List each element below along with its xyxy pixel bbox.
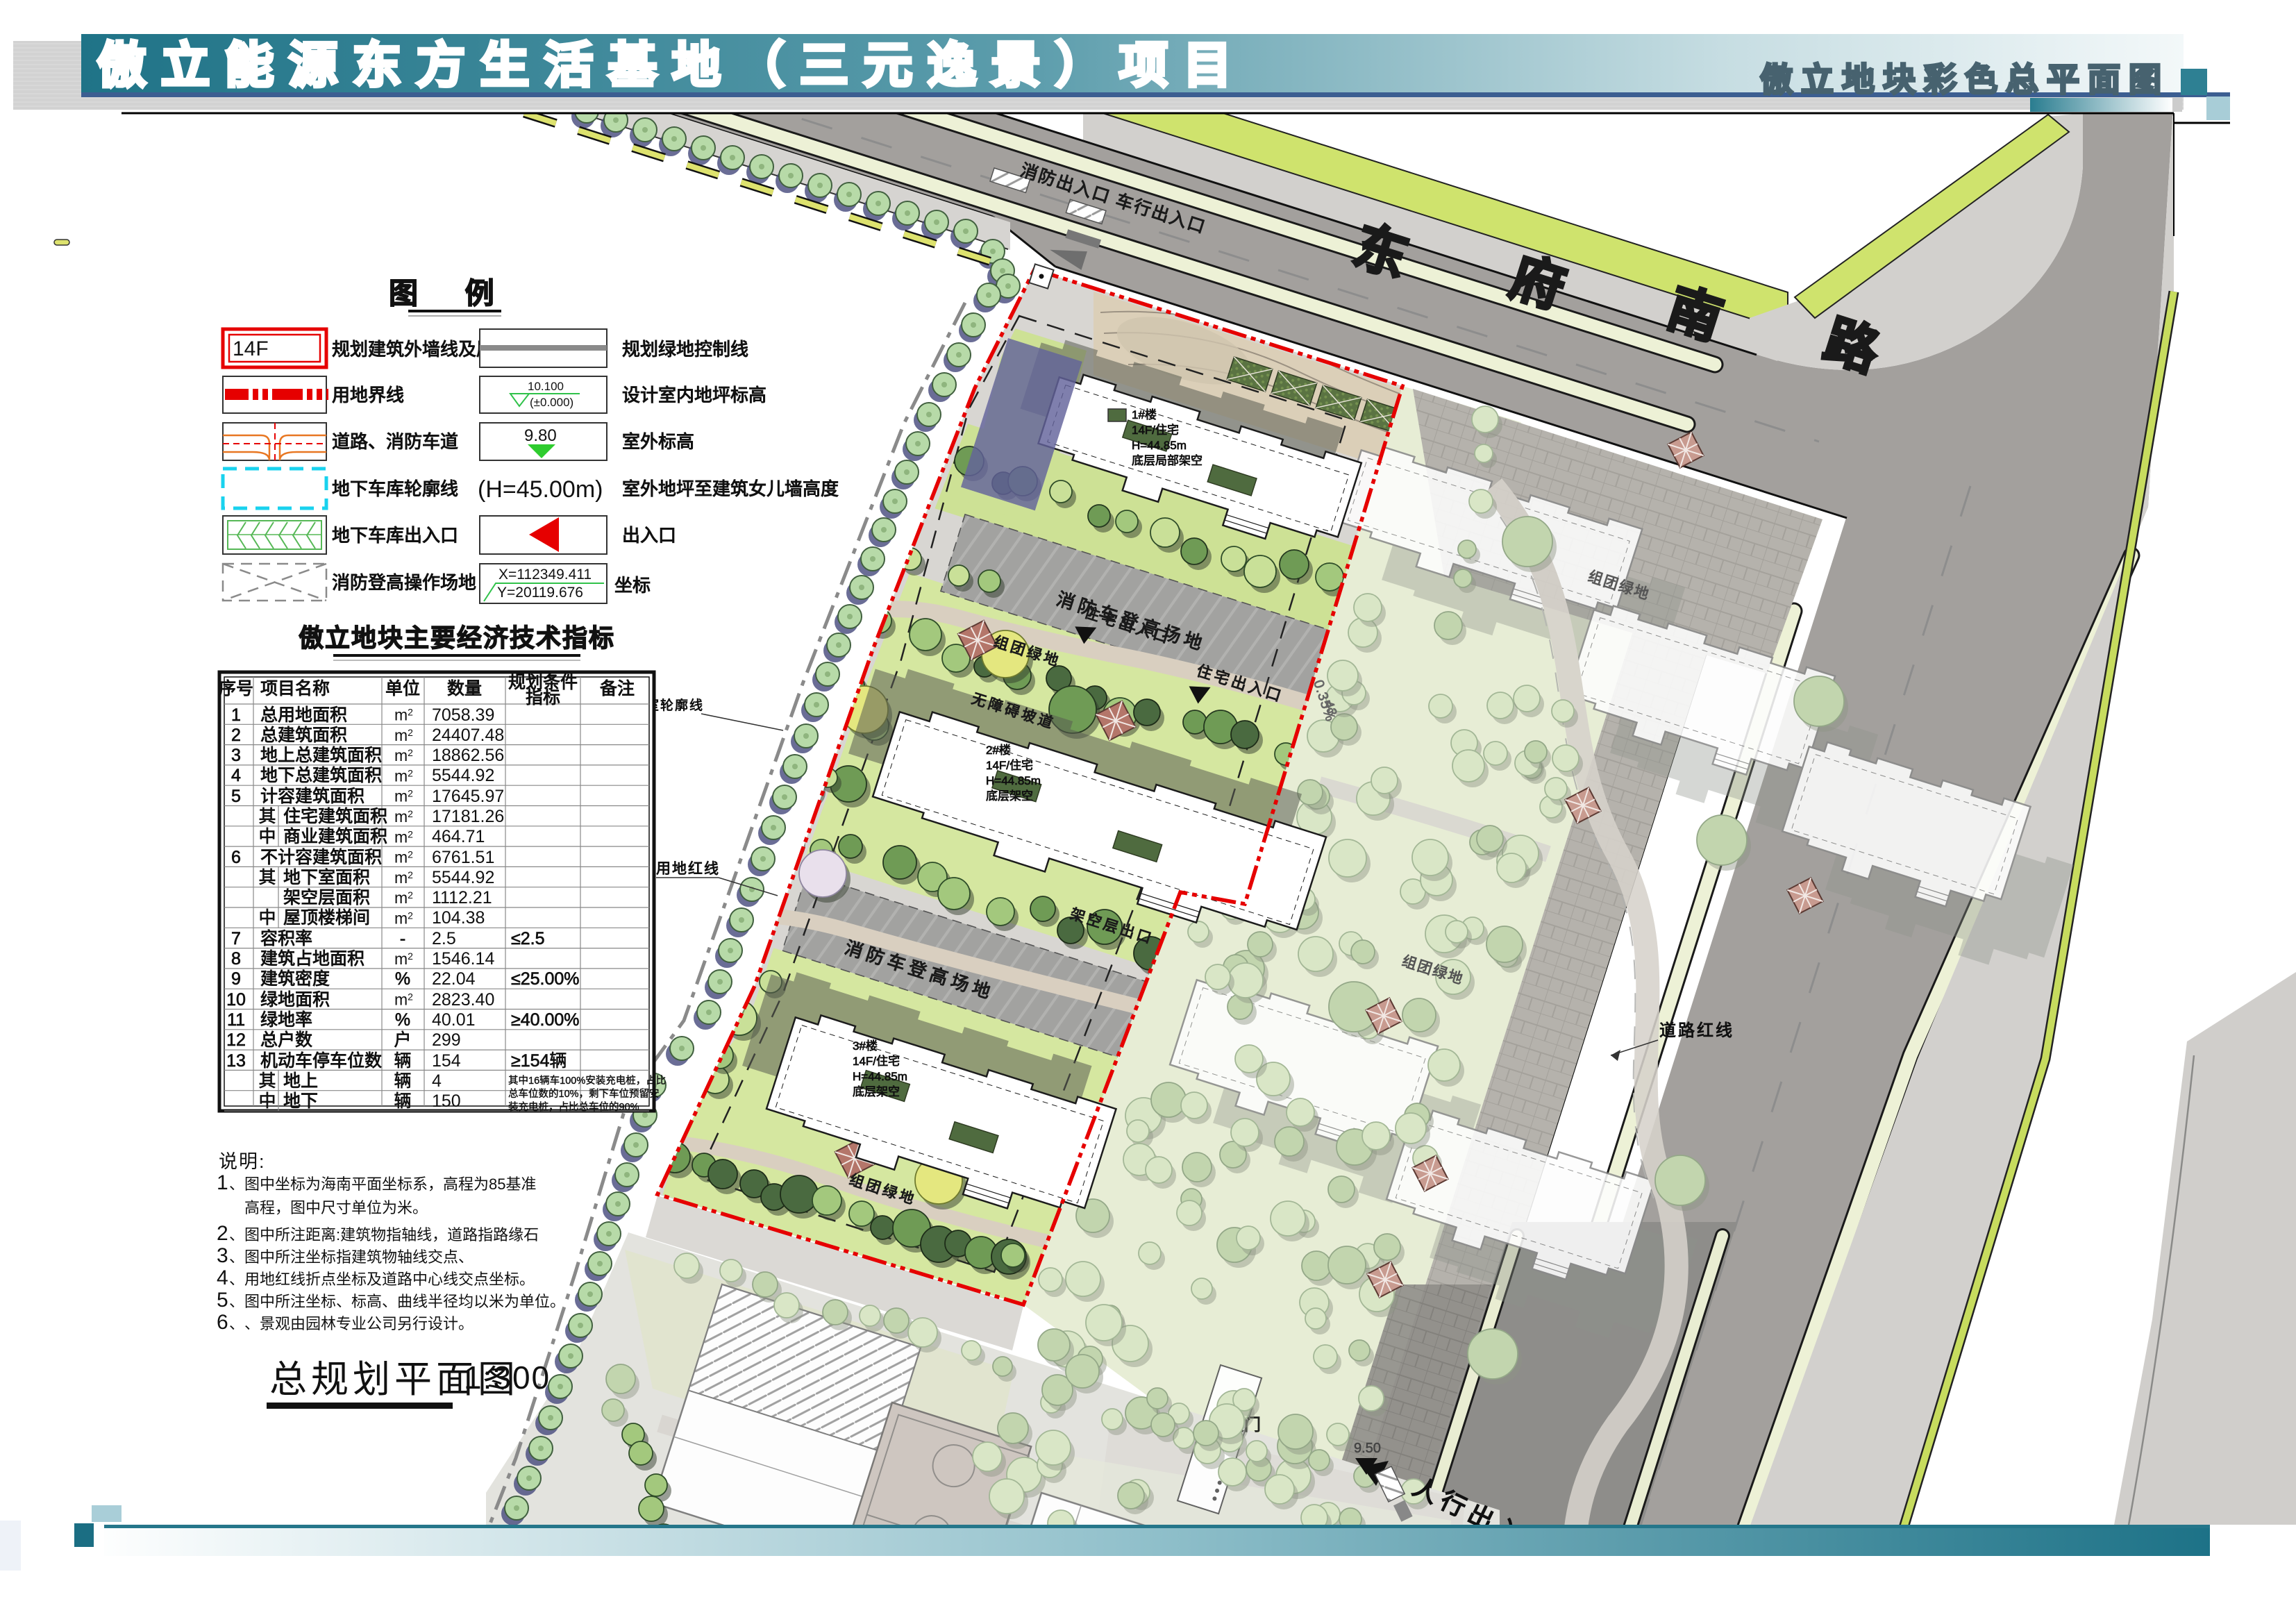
svg-text:底层局部架空: 底层局部架空 xyxy=(1132,454,1203,467)
svg-text:H=44.85m: H=44.85m xyxy=(986,774,1041,787)
svg-text:8: 8 xyxy=(231,949,241,969)
svg-text:辆: 辆 xyxy=(394,1091,411,1111)
svg-text:464.71: 464.71 xyxy=(432,827,485,846)
svg-text:图中坐标为海南平面坐标系，高程为85基准: 图中坐标为海南平面坐标系，高程为85基准 xyxy=(244,1175,536,1193)
svg-text:11: 11 xyxy=(227,1010,245,1030)
svg-text:5544.92: 5544.92 xyxy=(432,868,494,887)
svg-text:4: 4 xyxy=(432,1071,442,1091)
svg-text:室外地坪至建筑女儿墙高度: 室外地坪至建筑女儿墙高度 xyxy=(622,478,839,499)
svg-text:总车位数的10%，剩下车位预留安: 总车位数的10%，剩下车位预留安 xyxy=(508,1088,660,1100)
svg-text:总用地面积: 总用地面积 xyxy=(260,705,347,725)
svg-text:24407.48: 24407.48 xyxy=(432,726,504,745)
svg-text:数量: 数量 xyxy=(447,679,482,698)
svg-text:104.38: 104.38 xyxy=(432,908,485,928)
svg-text:道路、消防车道: 道路、消防车道 xyxy=(332,431,458,452)
svg-text:地下车库出入口: 地下车库出入口 xyxy=(332,525,458,546)
svg-text:150: 150 xyxy=(432,1091,461,1111)
svg-text:备注: 备注 xyxy=(600,679,635,698)
svg-text:地下: 地下 xyxy=(283,1091,318,1111)
svg-text:高程，图中尺寸单位为米。: 高程，图中尺寸单位为米。 xyxy=(244,1199,428,1216)
svg-text:绿地率: 绿地率 xyxy=(260,1010,312,1030)
svg-text:1: 1 xyxy=(217,1171,228,1194)
svg-text:商业建筑面积: 商业建筑面积 xyxy=(283,827,387,846)
svg-text:屋顶楼梯间: 屋顶楼梯间 xyxy=(283,908,370,928)
svg-text:6761.51: 6761.51 xyxy=(432,848,494,867)
svg-text:≤2.5: ≤2.5 xyxy=(511,929,544,948)
svg-text:绿地面积: 绿地面积 xyxy=(260,990,330,1010)
svg-text:X=112349.411: X=112349.411 xyxy=(498,567,592,583)
svg-text:用地红线折点坐标及道路中心线交点坐标。: 用地红线折点坐标及道路中心线交点坐标。 xyxy=(244,1271,535,1288)
svg-text:、: 、 xyxy=(229,1271,244,1288)
svg-text:18862.56: 18862.56 xyxy=(432,746,504,765)
svg-text:10.100: 10.100 xyxy=(528,380,564,393)
svg-text:说明:: 说明: xyxy=(219,1151,266,1172)
svg-text:1:300: 1:300 xyxy=(464,1359,551,1396)
svg-text:2: 2 xyxy=(231,726,241,745)
svg-text:≤25.00%: ≤25.00% xyxy=(511,969,580,989)
svg-text:坐标: 坐标 xyxy=(614,575,651,596)
svg-text:13: 13 xyxy=(226,1051,246,1071)
svg-text:中: 中 xyxy=(258,827,276,846)
svg-text:7: 7 xyxy=(231,929,241,948)
svg-text:用地红线: 用地红线 xyxy=(656,861,720,877)
svg-text:%: % xyxy=(395,1010,410,1030)
svg-text:图中所注坐标指建筑物轴线交点、: 图中所注坐标指建筑物轴线交点、 xyxy=(244,1248,474,1266)
svg-text:傲立能源东方生活基地（三元逸景）项目: 傲立能源东方生活基地（三元逸景）项目 xyxy=(97,38,1247,92)
svg-text:底层架空: 底层架空 xyxy=(986,789,1033,803)
svg-text:H=44.85m: H=44.85m xyxy=(853,1070,907,1083)
svg-text:299: 299 xyxy=(432,1030,461,1050)
svg-text:14F/住宅: 14F/住宅 xyxy=(986,759,1033,772)
svg-text:单位: 单位 xyxy=(385,679,420,698)
svg-text:2#楼: 2#楼 xyxy=(986,744,1011,757)
svg-text:(±0.000): (±0.000) xyxy=(530,396,573,409)
svg-text:住宅建筑面积: 住宅建筑面积 xyxy=(283,807,387,826)
svg-text:、: 、 xyxy=(229,1315,244,1332)
svg-text:、: 、 xyxy=(229,1226,244,1244)
svg-text:设计室内地坪标高: 设计室内地坪标高 xyxy=(622,385,766,405)
svg-text:出入口: 出入口 xyxy=(622,525,676,546)
svg-text:总户数: 总户数 xyxy=(260,1030,312,1050)
svg-text:辆: 辆 xyxy=(394,1051,411,1071)
svg-text:2: 2 xyxy=(217,1222,228,1245)
svg-text:序号: 序号 xyxy=(219,679,253,698)
svg-text:中: 中 xyxy=(258,1091,276,1111)
svg-text:5: 5 xyxy=(231,787,241,806)
svg-text:其中16辆车100%安装充电桩，占比: 其中16辆车100%安装充电桩，占比 xyxy=(508,1075,666,1087)
svg-text:、景观由园林专业公司另行设计。: 、景观由园林专业公司另行设计。 xyxy=(244,1315,474,1332)
svg-text:用地界线: 用地界线 xyxy=(332,385,404,405)
svg-text:17645.97: 17645.97 xyxy=(432,787,504,806)
svg-text:图中所注坐标、标高、曲线半径均以米为单位。: 图中所注坐标、标高、曲线半径均以米为单位。 xyxy=(244,1293,565,1310)
svg-text:9.50: 9.50 xyxy=(1354,1441,1381,1456)
svg-text:9: 9 xyxy=(231,969,241,989)
svg-text:机动车停车位数: 机动车停车位数 xyxy=(260,1051,382,1071)
svg-text:室外标高: 室外标高 xyxy=(622,431,694,452)
svg-text:3#楼: 3#楼 xyxy=(853,1039,878,1053)
svg-text:架空层面积: 架空层面积 xyxy=(283,888,370,907)
svg-text:规划绿地控制线: 规划绿地控制线 xyxy=(622,339,748,360)
svg-text:%: % xyxy=(395,969,410,989)
svg-text:其: 其 xyxy=(258,1071,276,1091)
svg-text:图中所注距离:建筑物指轴线，道路指路缘石: 图中所注距离:建筑物指轴线，道路指路缘石 xyxy=(244,1226,539,1244)
svg-text:、: 、 xyxy=(229,1175,244,1193)
svg-text:1546.14: 1546.14 xyxy=(432,949,494,969)
svg-text:154: 154 xyxy=(432,1051,461,1071)
svg-text:Y=20119.676: Y=20119.676 xyxy=(497,585,583,601)
svg-text:道路红线: 道路红线 xyxy=(1659,1021,1734,1040)
svg-text:地下总建筑面积: 地下总建筑面积 xyxy=(260,766,382,785)
svg-text:、: 、 xyxy=(229,1293,244,1310)
svg-text:2823.40: 2823.40 xyxy=(432,990,494,1010)
svg-text:户: 户 xyxy=(394,1030,411,1050)
svg-text:6: 6 xyxy=(231,848,241,867)
svg-text:7058.39: 7058.39 xyxy=(432,705,494,725)
svg-text:地上: 地上 xyxy=(283,1071,318,1091)
svg-text:辆: 辆 xyxy=(394,1071,411,1091)
svg-text:指标: 指标 xyxy=(526,688,560,708)
svg-text:3: 3 xyxy=(231,746,241,765)
svg-text:总建筑面积: 总建筑面积 xyxy=(260,726,347,745)
svg-text:容积率: 容积率 xyxy=(260,929,312,948)
svg-text:地上总建筑面积: 地上总建筑面积 xyxy=(260,746,382,765)
svg-text:其: 其 xyxy=(258,807,276,826)
svg-text:中: 中 xyxy=(258,908,276,928)
svg-text:1: 1 xyxy=(231,705,241,725)
svg-text:计容建筑面积: 计容建筑面积 xyxy=(260,787,364,806)
svg-text:建筑密度: 建筑密度 xyxy=(260,969,330,989)
svg-text:40.01: 40.01 xyxy=(432,1010,476,1030)
svg-text:22.04: 22.04 xyxy=(432,969,476,989)
svg-text:5: 5 xyxy=(217,1289,228,1312)
svg-text:2.5: 2.5 xyxy=(432,929,456,948)
svg-text:4: 4 xyxy=(217,1266,228,1289)
svg-text:地下室面积: 地下室面积 xyxy=(283,868,370,887)
svg-text:17181.26: 17181.26 xyxy=(432,807,504,826)
svg-text:1#楼: 1#楼 xyxy=(1132,408,1157,421)
svg-text:1112.21: 1112.21 xyxy=(432,888,492,907)
svg-text:图 例: 图 例 xyxy=(389,277,514,310)
svg-text:6: 6 xyxy=(217,1311,228,1334)
svg-text:12: 12 xyxy=(226,1030,246,1050)
svg-text:H=44.85m: H=44.85m xyxy=(1132,439,1187,452)
svg-text:14F/住宅: 14F/住宅 xyxy=(853,1055,900,1068)
svg-text:其: 其 xyxy=(258,868,276,887)
svg-text:傲立地块彩色总平面图: 傲立地块彩色总平面图 xyxy=(1760,61,2170,98)
svg-text:10: 10 xyxy=(226,990,246,1010)
svg-text:不计容建筑面积: 不计容建筑面积 xyxy=(260,848,382,867)
svg-text:(H=45.00m): (H=45.00m) xyxy=(478,476,603,503)
svg-text:傲立地块主要经济技术指标: 傲立地块主要经济技术指标 xyxy=(299,623,615,652)
svg-text:≥154辆: ≥154辆 xyxy=(511,1051,567,1071)
svg-text:14F: 14F xyxy=(233,337,269,360)
svg-text:地下车库轮廓线: 地下车库轮廓线 xyxy=(332,478,458,499)
svg-text:3: 3 xyxy=(217,1244,228,1267)
svg-text:≥40.00%: ≥40.00% xyxy=(511,1010,580,1030)
svg-text:9.80: 9.80 xyxy=(524,426,557,445)
svg-text:5544.92: 5544.92 xyxy=(432,766,494,785)
svg-text:项目名称: 项目名称 xyxy=(260,679,330,698)
svg-text:底层架空: 底层架空 xyxy=(853,1085,900,1098)
svg-text:14F/住宅: 14F/住宅 xyxy=(1132,424,1179,437)
svg-text:-: - xyxy=(400,929,405,948)
svg-text:4: 4 xyxy=(231,766,241,785)
svg-text:建筑占地面积: 建筑占地面积 xyxy=(260,949,364,969)
svg-text:、: 、 xyxy=(229,1248,244,1266)
svg-text:消防登高操作场地: 消防登高操作场地 xyxy=(332,572,476,593)
svg-text:装充电桩，占比总车位的90%: 装充电桩，占比总车位的90% xyxy=(508,1101,639,1113)
